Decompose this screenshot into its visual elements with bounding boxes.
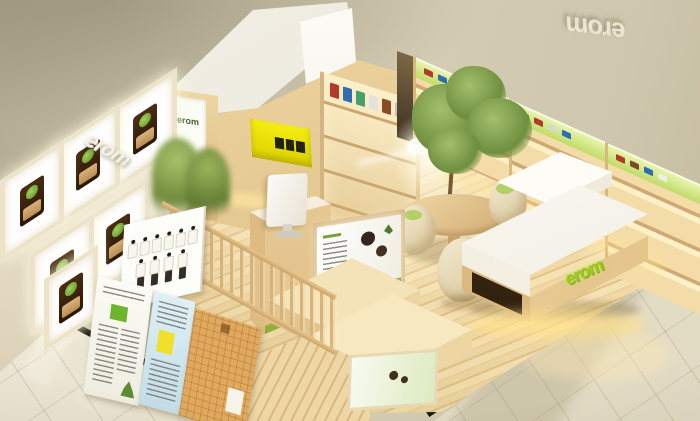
- person-figure: [187, 225, 198, 246]
- poster-product-blob: [389, 371, 398, 381]
- poster-product-blob: [361, 230, 375, 246]
- panel-yellow-square: [156, 329, 175, 355]
- person-figure: [139, 236, 150, 257]
- person-figure: [163, 251, 175, 283]
- person-figure: [175, 228, 186, 249]
- poster-product-blob: [401, 376, 408, 384]
- panel-text-lines: [102, 286, 144, 305]
- panel-text-lines: [116, 329, 140, 375]
- sign-glyph: [275, 136, 285, 149]
- panel-dark-square: [220, 323, 230, 335]
- counter-monitor: [266, 173, 308, 227]
- person-figure: [177, 248, 189, 280]
- poster-herb-sprig: [384, 224, 393, 235]
- panel-text-lines: [156, 301, 188, 331]
- panel-text-lines: [146, 358, 181, 405]
- product-jar-graphic: [20, 174, 44, 228]
- panel-plant-graphic: [120, 380, 136, 399]
- product-jar-graphic: [133, 102, 157, 156]
- person-figure: [149, 255, 161, 287]
- person-figure: [151, 233, 162, 254]
- sign-glyph: [286, 138, 295, 151]
- store-render-scene: erom erom: [0, 0, 700, 421]
- person-figure: [127, 239, 138, 260]
- plant-foliage: [428, 128, 482, 174]
- panel-white-block: [225, 387, 244, 415]
- banner-brand-text: erom: [177, 114, 199, 127]
- platform-underglow: [468, 312, 648, 338]
- product-jar-graphic: [59, 271, 83, 325]
- monitor-base: [276, 231, 302, 238]
- grass-decor: [186, 148, 230, 214]
- sign-glyph: [296, 140, 306, 153]
- poster-product-blob: [376, 245, 387, 258]
- panel-text-lines: [92, 323, 119, 385]
- panel-green-square: [110, 304, 128, 323]
- display-table-poster: [347, 349, 439, 411]
- poster-title-bar: [323, 233, 341, 239]
- person-figure: [163, 230, 174, 251]
- chair-cushion: [404, 210, 422, 220]
